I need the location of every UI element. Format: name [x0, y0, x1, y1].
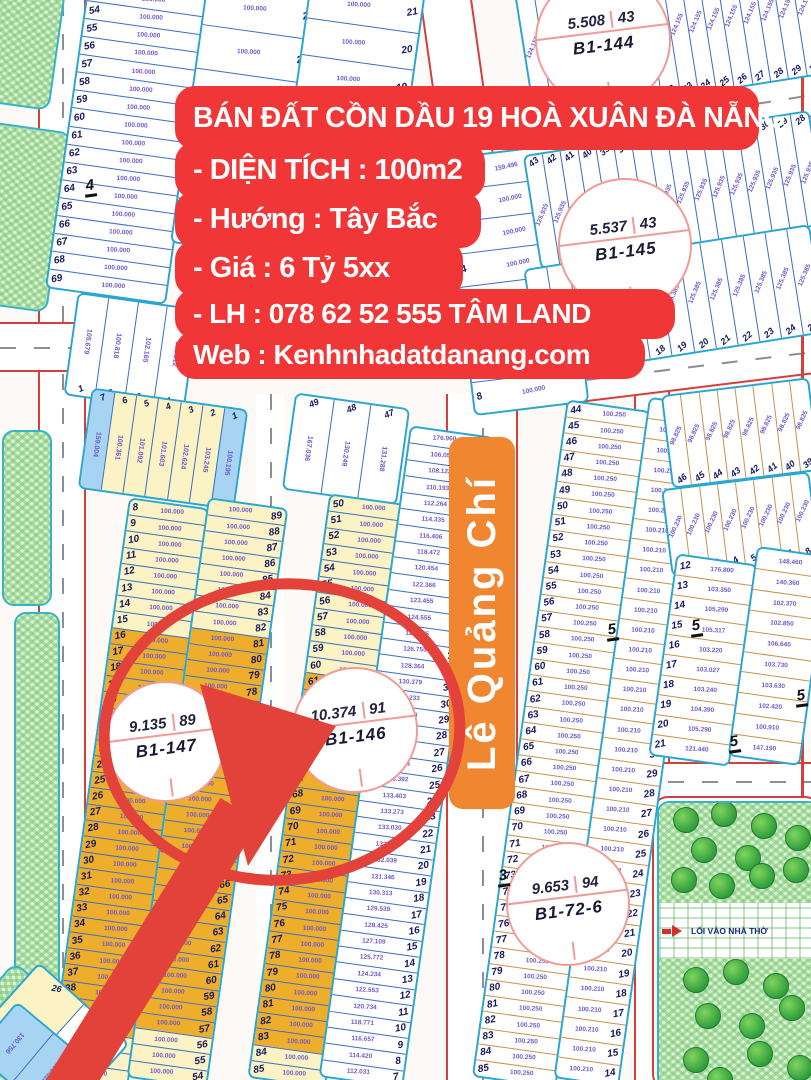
- seal-area-value: 9.135: [104, 714, 175, 739]
- plot-number: 62: [209, 943, 222, 955]
- plot-number: 27: [754, 69, 767, 82]
- plot-area-value: 100.000: [273, 1022, 329, 1031]
- plot-number: 67: [56, 237, 69, 249]
- plot-number: 9: [397, 1040, 404, 1051]
- plot-area-value: 100.000: [330, 618, 386, 627]
- plot-number: 21: [419, 845, 432, 857]
- plot-number: 20: [401, 45, 414, 57]
- plot-number: 50: [556, 501, 569, 513]
- plot-number: 40: [784, 459, 797, 472]
- plot-number: 89: [270, 511, 283, 523]
- plot-number: 64: [63, 184, 76, 196]
- plot-area-value: 100.000: [287, 925, 343, 934]
- plot-area-value: 100.250: [558, 588, 620, 598]
- plot-area-value: 100.000: [78, 989, 136, 999]
- plot-number: 20: [417, 861, 430, 873]
- plot-area-value: 100.210: [568, 1006, 611, 1015]
- plot-area-value: 100.250: [495, 1037, 557, 1047]
- plot-number: 61: [207, 959, 220, 971]
- plot-number: 1: [77, 384, 85, 394]
- plot-number: 75: [275, 902, 288, 914]
- plot-area-value: 100.000: [189, 667, 247, 677]
- plot-area-value: 100.210: [574, 966, 617, 975]
- plot-area-value: 100.210: [602, 767, 645, 776]
- tree-icon: [739, 1013, 765, 1039]
- plot-area-value: 100.000: [130, 621, 188, 631]
- plot-number: 60: [310, 660, 323, 672]
- plot-number: 52: [552, 533, 565, 545]
- plot-area-value: 103.220: [681, 646, 740, 656]
- green-strip-left-1: [2, 430, 52, 606]
- plot-number: 85: [261, 575, 274, 587]
- plot-area-value: 100.000: [85, 941, 143, 951]
- plot-area-value: 122.553: [336, 986, 398, 996]
- plot-area-value: 100.000: [202, 571, 260, 581]
- plot-area-value: 129.539: [347, 905, 409, 915]
- plot-area-value: 100.000: [339, 553, 395, 562]
- plot-area-value: 167.036: [299, 408, 317, 489]
- plot-area-value: 100.000: [289, 908, 345, 917]
- plot-area-value: 100.000: [193, 635, 251, 645]
- plot-area-value: 100.210: [630, 567, 673, 576]
- plot-number: 77: [495, 935, 508, 947]
- plot-area-value: 100.000: [96, 861, 154, 871]
- plot-area-value: 102.165: [137, 306, 156, 393]
- plot-number: 14: [403, 958, 416, 970]
- plot-number: 47: [563, 453, 576, 465]
- plot-number: 19: [618, 968, 631, 980]
- plot-number: 26: [51, 984, 62, 995]
- plot-number: 12: [679, 560, 692, 572]
- plot-number: 13: [676, 580, 689, 592]
- plot-area-value: 125.772: [340, 954, 402, 964]
- plot-area-value: 100.000: [303, 812, 359, 821]
- plot-area-value: 124.555: [388, 613, 450, 623]
- block-number-mark: 5: [794, 687, 809, 707]
- plot-area-value: 100.210: [627, 587, 670, 596]
- plot-area-value: 100.000: [139, 1020, 197, 1030]
- plot-number: 36: [69, 951, 82, 963]
- plot-area-value: 104.390: [673, 706, 732, 716]
- tree-icon: [723, 959, 749, 985]
- street-label: Lê Quảng Chí: [449, 437, 515, 809]
- plot-number: 67: [294, 773, 307, 785]
- plot-area-value: 100.250: [567, 523, 629, 533]
- park-inner: LỐI VÀO NHÀ THỜ: [657, 801, 811, 1080]
- plot-area-value: 100.000: [160, 875, 218, 885]
- plot-number: 55: [194, 1056, 207, 1068]
- plot-number: 55: [86, 23, 99, 35]
- plot-number: 62: [529, 694, 542, 706]
- tree-icon: [779, 995, 805, 1021]
- seal-area-value: 10.374: [291, 702, 365, 728]
- tree-icon: [695, 1003, 721, 1029]
- plot-number: 24: [632, 869, 645, 881]
- seal-area-value: 9.653: [505, 876, 578, 902]
- plot-area-value: 100.000: [98, 845, 156, 855]
- plot-number: 68: [291, 789, 304, 801]
- plot-area-value: 100.000: [136, 573, 194, 583]
- plot-number: 58: [200, 1008, 213, 1020]
- plot-number: 44: [711, 468, 724, 481]
- plot-area-value: 100.250: [545, 684, 607, 694]
- plot-area-value: 147.190: [734, 744, 795, 754]
- plot-number: 18: [109, 663, 122, 675]
- plot-number: 51: [330, 515, 343, 527]
- plot-area-value: 100.000: [268, 1054, 324, 1063]
- plot-area-value: 132.039: [354, 857, 416, 867]
- plot-area-value: 102.420: [740, 703, 801, 713]
- tree-icon: [711, 801, 737, 827]
- plot-number: 86: [263, 559, 276, 571]
- plot-number: 20: [657, 719, 670, 731]
- plot-number: 63: [66, 166, 79, 178]
- plot-area-value: 100.000: [305, 795, 361, 804]
- plot-area-value: 100.000: [343, 521, 399, 530]
- plot-number: 30: [82, 855, 95, 867]
- plot-number: 68: [516, 790, 529, 802]
- plot-area-value: 100.210: [593, 826, 636, 835]
- plot-number: 64: [214, 911, 227, 923]
- plot-area-value: 100.250: [574, 475, 636, 485]
- plot-area-value: 100.250: [493, 1053, 555, 1063]
- plot-area-value: 100.000: [307, 37, 400, 48]
- plot-area-value: 100.000: [266, 1070, 322, 1079]
- plot-area-value: 100.000: [327, 634, 383, 643]
- plot-number: 14: [674, 600, 687, 612]
- plot-area-value: 100.000: [209, 523, 267, 533]
- plot-area-value: 100.000: [82, 957, 140, 967]
- plot-area-value: 102.850: [751, 620, 811, 630]
- plot-area-value: 100.210: [619, 647, 662, 656]
- plot-area-value: 112.031: [324, 1068, 392, 1078]
- plot-number: 29: [790, 63, 803, 76]
- plot-number: 21: [623, 929, 636, 941]
- plot-area-value: 100.250: [534, 764, 596, 774]
- plot-area-value: 100.000: [144, 988, 202, 998]
- plot-number: 83: [482, 1031, 495, 1043]
- plot-area-value: 100.000: [337, 569, 393, 578]
- plot-area-value: 100.210: [596, 806, 639, 815]
- plot-number: 41: [766, 461, 779, 474]
- plot-area-value: 120.454: [395, 565, 457, 575]
- plot-number: 71: [509, 838, 522, 850]
- plot-area-value: 100.000: [312, 0, 405, 11]
- plot-area-value: 100.000: [137, 1036, 195, 1046]
- tree-icon: [683, 1047, 709, 1073]
- plot-area-value: 100.000: [94, 877, 152, 887]
- plot-number: 26: [736, 72, 749, 85]
- plot-area-value: 100.000: [80, 973, 138, 983]
- plot-number: 55: [545, 581, 558, 593]
- plot-number: 88: [268, 527, 281, 539]
- plot-number: 37: [67, 967, 80, 979]
- plot-area-value: 100.210: [621, 627, 664, 636]
- plot-area-value: 100.000: [275, 1005, 331, 1014]
- tree-icon: [763, 973, 789, 999]
- plot-area-value: 124.234: [338, 970, 400, 980]
- plot-area-value: 100.210: [599, 786, 642, 795]
- tree-icon: [751, 813, 777, 839]
- plot-area-value: 133.030: [359, 824, 421, 834]
- plot-number: 82: [260, 1015, 273, 1027]
- plot-area-value: 176.800: [693, 567, 752, 577]
- plot-number: 17: [612, 1008, 625, 1020]
- plot-area-value: 100.000: [157, 891, 215, 901]
- ad-title: BÁN ĐẤT CỒN DẦU 19 HOÀ XUÂN ĐÀ NẴNG: [175, 86, 759, 150]
- plot-area-value: 100.210: [613, 687, 656, 696]
- plot-area-value: 100.000: [196, 619, 254, 629]
- plot-area-value: 100.250: [581, 427, 643, 437]
- plot-area-value: 100.250: [579, 443, 641, 453]
- plot-number: 7: [393, 1073, 400, 1080]
- tree-icon: [673, 807, 699, 833]
- plot-number: 53: [549, 549, 562, 561]
- plot-area-value: 100.000: [332, 602, 388, 611]
- block-number-mark: 4: [83, 177, 98, 197]
- plot-number: 52: [328, 531, 341, 543]
- plot-area-value: 100.000: [142, 1004, 200, 1014]
- plot-number: 39: [802, 457, 811, 470]
- plot-area-value: 100.250: [491, 1069, 553, 1079]
- plot-number: 55: [321, 579, 334, 591]
- plot-number: 54: [191, 1072, 204, 1080]
- tree-icon: [787, 1055, 811, 1080]
- plot-number: 75: [239, 735, 252, 747]
- plot-number: 46: [675, 472, 688, 485]
- plot-number: 15: [406, 942, 419, 954]
- plot-number: 19: [660, 700, 673, 712]
- plot-number: 58: [314, 628, 327, 640]
- plot-number: 58: [538, 629, 551, 641]
- plot-area-value: 100.000: [89, 909, 147, 919]
- plot-number: 65: [216, 895, 229, 907]
- plot-area-value: 100.000: [202, 47, 295, 58]
- plot-number: 17: [112, 647, 125, 659]
- plot-area-value: 100.000: [278, 989, 334, 998]
- plot-number: 25: [94, 775, 107, 787]
- plot-area-value: 125.655: [386, 630, 448, 640]
- plot-number: 50: [332, 499, 345, 511]
- plot-area-value: 100.250: [547, 668, 609, 678]
- plot-number: 68: [223, 847, 236, 859]
- plot-number: 28: [772, 66, 785, 79]
- plot-area-value: 100.000: [296, 860, 352, 869]
- plot-number: 58: [78, 76, 91, 88]
- plot-block-R2-a: 98.8254698.8254598.8254498.8254398.82542…: [661, 377, 811, 488]
- plot-number: 15: [671, 620, 684, 632]
- plot-number: 73: [280, 870, 293, 882]
- plot-area-value: 102.370: [754, 599, 811, 609]
- plot-area-value: 100.000: [64, 281, 163, 293]
- plot-number: 57: [540, 613, 553, 625]
- plot-area-value: 105.679: [78, 298, 97, 385]
- plot-number: 85: [253, 1064, 266, 1076]
- plot-area-value: 106.640: [748, 641, 809, 651]
- plot-number: 13: [121, 582, 134, 594]
- plot-number: 60: [534, 661, 547, 673]
- block-number-mark: 5: [689, 617, 704, 637]
- plot-area-value: 132.700: [356, 840, 418, 850]
- plot-area-value: 100.000: [138, 557, 197, 567]
- plot-area-value: 100.000: [208, 4, 301, 15]
- plot-number: 18: [412, 893, 425, 905]
- plot-number: 9: [130, 518, 137, 529]
- plot-number: 21: [654, 739, 667, 751]
- plot-area-value: 100.250: [529, 796, 591, 806]
- plot-number: 66: [520, 758, 533, 770]
- plot-area-value: 130.326: [28, 1048, 72, 1080]
- plot-number: 33: [76, 903, 89, 915]
- plot-number: 56: [196, 1040, 209, 1052]
- plot-area-value: 100.000: [341, 537, 397, 546]
- plot-number: 72: [282, 854, 295, 866]
- plot-number: 68: [53, 255, 66, 267]
- plot-number: 59: [312, 644, 325, 656]
- plot-area-value: 100.000: [164, 843, 222, 853]
- plot-number: 60: [205, 975, 218, 987]
- plot-number: 81: [262, 999, 275, 1011]
- plot-number: 59: [536, 645, 549, 657]
- plot-area-value: 133.403: [363, 792, 425, 802]
- plot-area-value: 100.910: [737, 724, 798, 734]
- plot-area-value: 100.000: [135, 1052, 193, 1062]
- plot-area-value: 100.250: [502, 989, 564, 999]
- plot-number: 67: [518, 774, 531, 786]
- plot-area-value: 100.000: [169, 811, 227, 821]
- plot-area-value: 100.250: [552, 636, 614, 646]
- plot-area-value: 100.250: [583, 411, 645, 421]
- plot-area-value: 131.288: [374, 418, 392, 499]
- plot-number: 54: [88, 5, 101, 17]
- plot-number: 56: [319, 595, 332, 607]
- tree-icon: [749, 863, 775, 889]
- plot-number: 70: [227, 815, 240, 827]
- plot-area-value: 100.250: [570, 507, 632, 517]
- seal-area-value: 5.508: [534, 11, 614, 37]
- plot-number: 11: [125, 550, 137, 562]
- plot-area-value: 127.109: [343, 938, 405, 948]
- plot-area-value: 100.250: [497, 1021, 559, 1031]
- plot-number: 24: [96, 759, 109, 771]
- plot-area-value: 100.250: [527, 812, 589, 822]
- tree-icon: [783, 857, 809, 883]
- plot-number: 18: [615, 988, 628, 1000]
- plot-number: 54: [547, 565, 560, 577]
- plot-number: 16: [668, 640, 681, 652]
- plot-area-value: 100.000: [485, 378, 583, 405]
- plot-area-value: 100.000: [293, 876, 349, 885]
- plot-number: 69: [225, 831, 238, 843]
- plot-area-value: 100.000: [153, 923, 211, 933]
- plot-area-value: 100.000: [205, 555, 263, 565]
- plot-area-value: 100.210: [565, 1026, 608, 1035]
- plot-area-value: 100.250: [540, 716, 602, 726]
- plot-area-value: 100.000: [346, 505, 402, 514]
- plot-number: 84: [479, 1047, 492, 1059]
- plot-number: 8: [475, 392, 484, 403]
- plot-number: 80: [264, 983, 277, 995]
- plot-number: 76: [241, 719, 254, 731]
- tree-icon: [747, 1041, 773, 1067]
- plot-number: 24: [785, 323, 798, 336]
- plot-number: 71: [230, 799, 243, 811]
- plot-number: 19: [415, 877, 428, 889]
- plot-number: 79: [491, 967, 504, 979]
- plot-area-value: 100.250: [500, 1005, 562, 1015]
- plot-number: 73: [234, 767, 247, 779]
- plot-block-L-head: 7159.0046100.3615101.0924101.6033102.624…: [78, 388, 249, 511]
- plot-number: 76: [273, 919, 286, 931]
- plot-number: 61: [531, 678, 544, 690]
- tree-icon: [671, 867, 697, 893]
- plot-area-value: 100.000: [284, 941, 340, 950]
- plot-number: 21: [406, 7, 419, 19]
- church-entrance-label: LỐI VÀO NHÀ THỜ: [691, 926, 768, 936]
- plot-area-value: 100.250: [531, 780, 593, 790]
- seal-lot-count: 91: [363, 696, 414, 719]
- plot-number: 32: [78, 887, 91, 899]
- plot-number: 28: [435, 731, 448, 743]
- plot-area-value: 100.250: [565, 539, 627, 549]
- plot-number: 12: [123, 566, 136, 578]
- plot-number: 80: [250, 655, 263, 667]
- plot-area-value: 148.460: [760, 558, 811, 568]
- plot-number: 81: [486, 999, 499, 1011]
- plot-number: 22: [422, 829, 435, 841]
- plot-number: 57: [316, 612, 329, 624]
- plot-area-value: 133.273: [361, 808, 423, 818]
- block-number-mark: 5: [727, 733, 742, 753]
- plot-area-value: 100.210: [610, 707, 653, 716]
- plot-number: 80: [489, 983, 502, 995]
- plot-number: 16: [408, 926, 421, 938]
- plot-area-value: 100.000: [138, 524, 202, 534]
- plot-area-value: 131.346: [352, 873, 414, 883]
- plot-area-value: 100.000: [140, 508, 204, 518]
- plot-number: 70: [287, 822, 300, 834]
- plot-area-value: 100.000: [134, 589, 192, 599]
- plot-area-value: 100.000: [200, 587, 258, 597]
- plot-area-value: 100.000: [87, 925, 145, 935]
- plot-number: 34: [73, 919, 86, 931]
- plot-number: 63: [527, 710, 540, 722]
- plot-area-value: 100.195: [219, 420, 238, 505]
- plot-area-value: 100.250: [536, 748, 598, 758]
- plot-number: 71: [285, 838, 298, 850]
- plot-number: 70: [511, 822, 524, 834]
- plot-number: 11: [397, 1007, 409, 1019]
- plot-area-value: 100.210: [616, 667, 659, 676]
- plot-area-value: 100.000: [125, 653, 183, 663]
- plot-area-value: 122.366: [393, 581, 455, 591]
- plot-number: 69: [51, 273, 64, 285]
- plot-area-value: 103.027: [679, 666, 738, 676]
- plot-number: 83: [257, 1032, 270, 1044]
- plot-area-value: 100.000: [132, 605, 190, 615]
- plot-area-value: 100.000: [155, 907, 213, 917]
- plot-number: 13: [401, 974, 414, 986]
- plot-number: 28: [643, 789, 656, 801]
- tree-icon: [785, 825, 811, 851]
- plot-number: 56: [543, 597, 556, 609]
- plot-number: 64: [525, 726, 538, 738]
- plot-number: 65: [522, 742, 535, 754]
- plot-area-value: 130.313: [350, 889, 412, 899]
- plot-number: 26: [91, 791, 104, 803]
- plot-number: 77: [243, 703, 256, 715]
- plot-number: 15: [116, 615, 129, 627]
